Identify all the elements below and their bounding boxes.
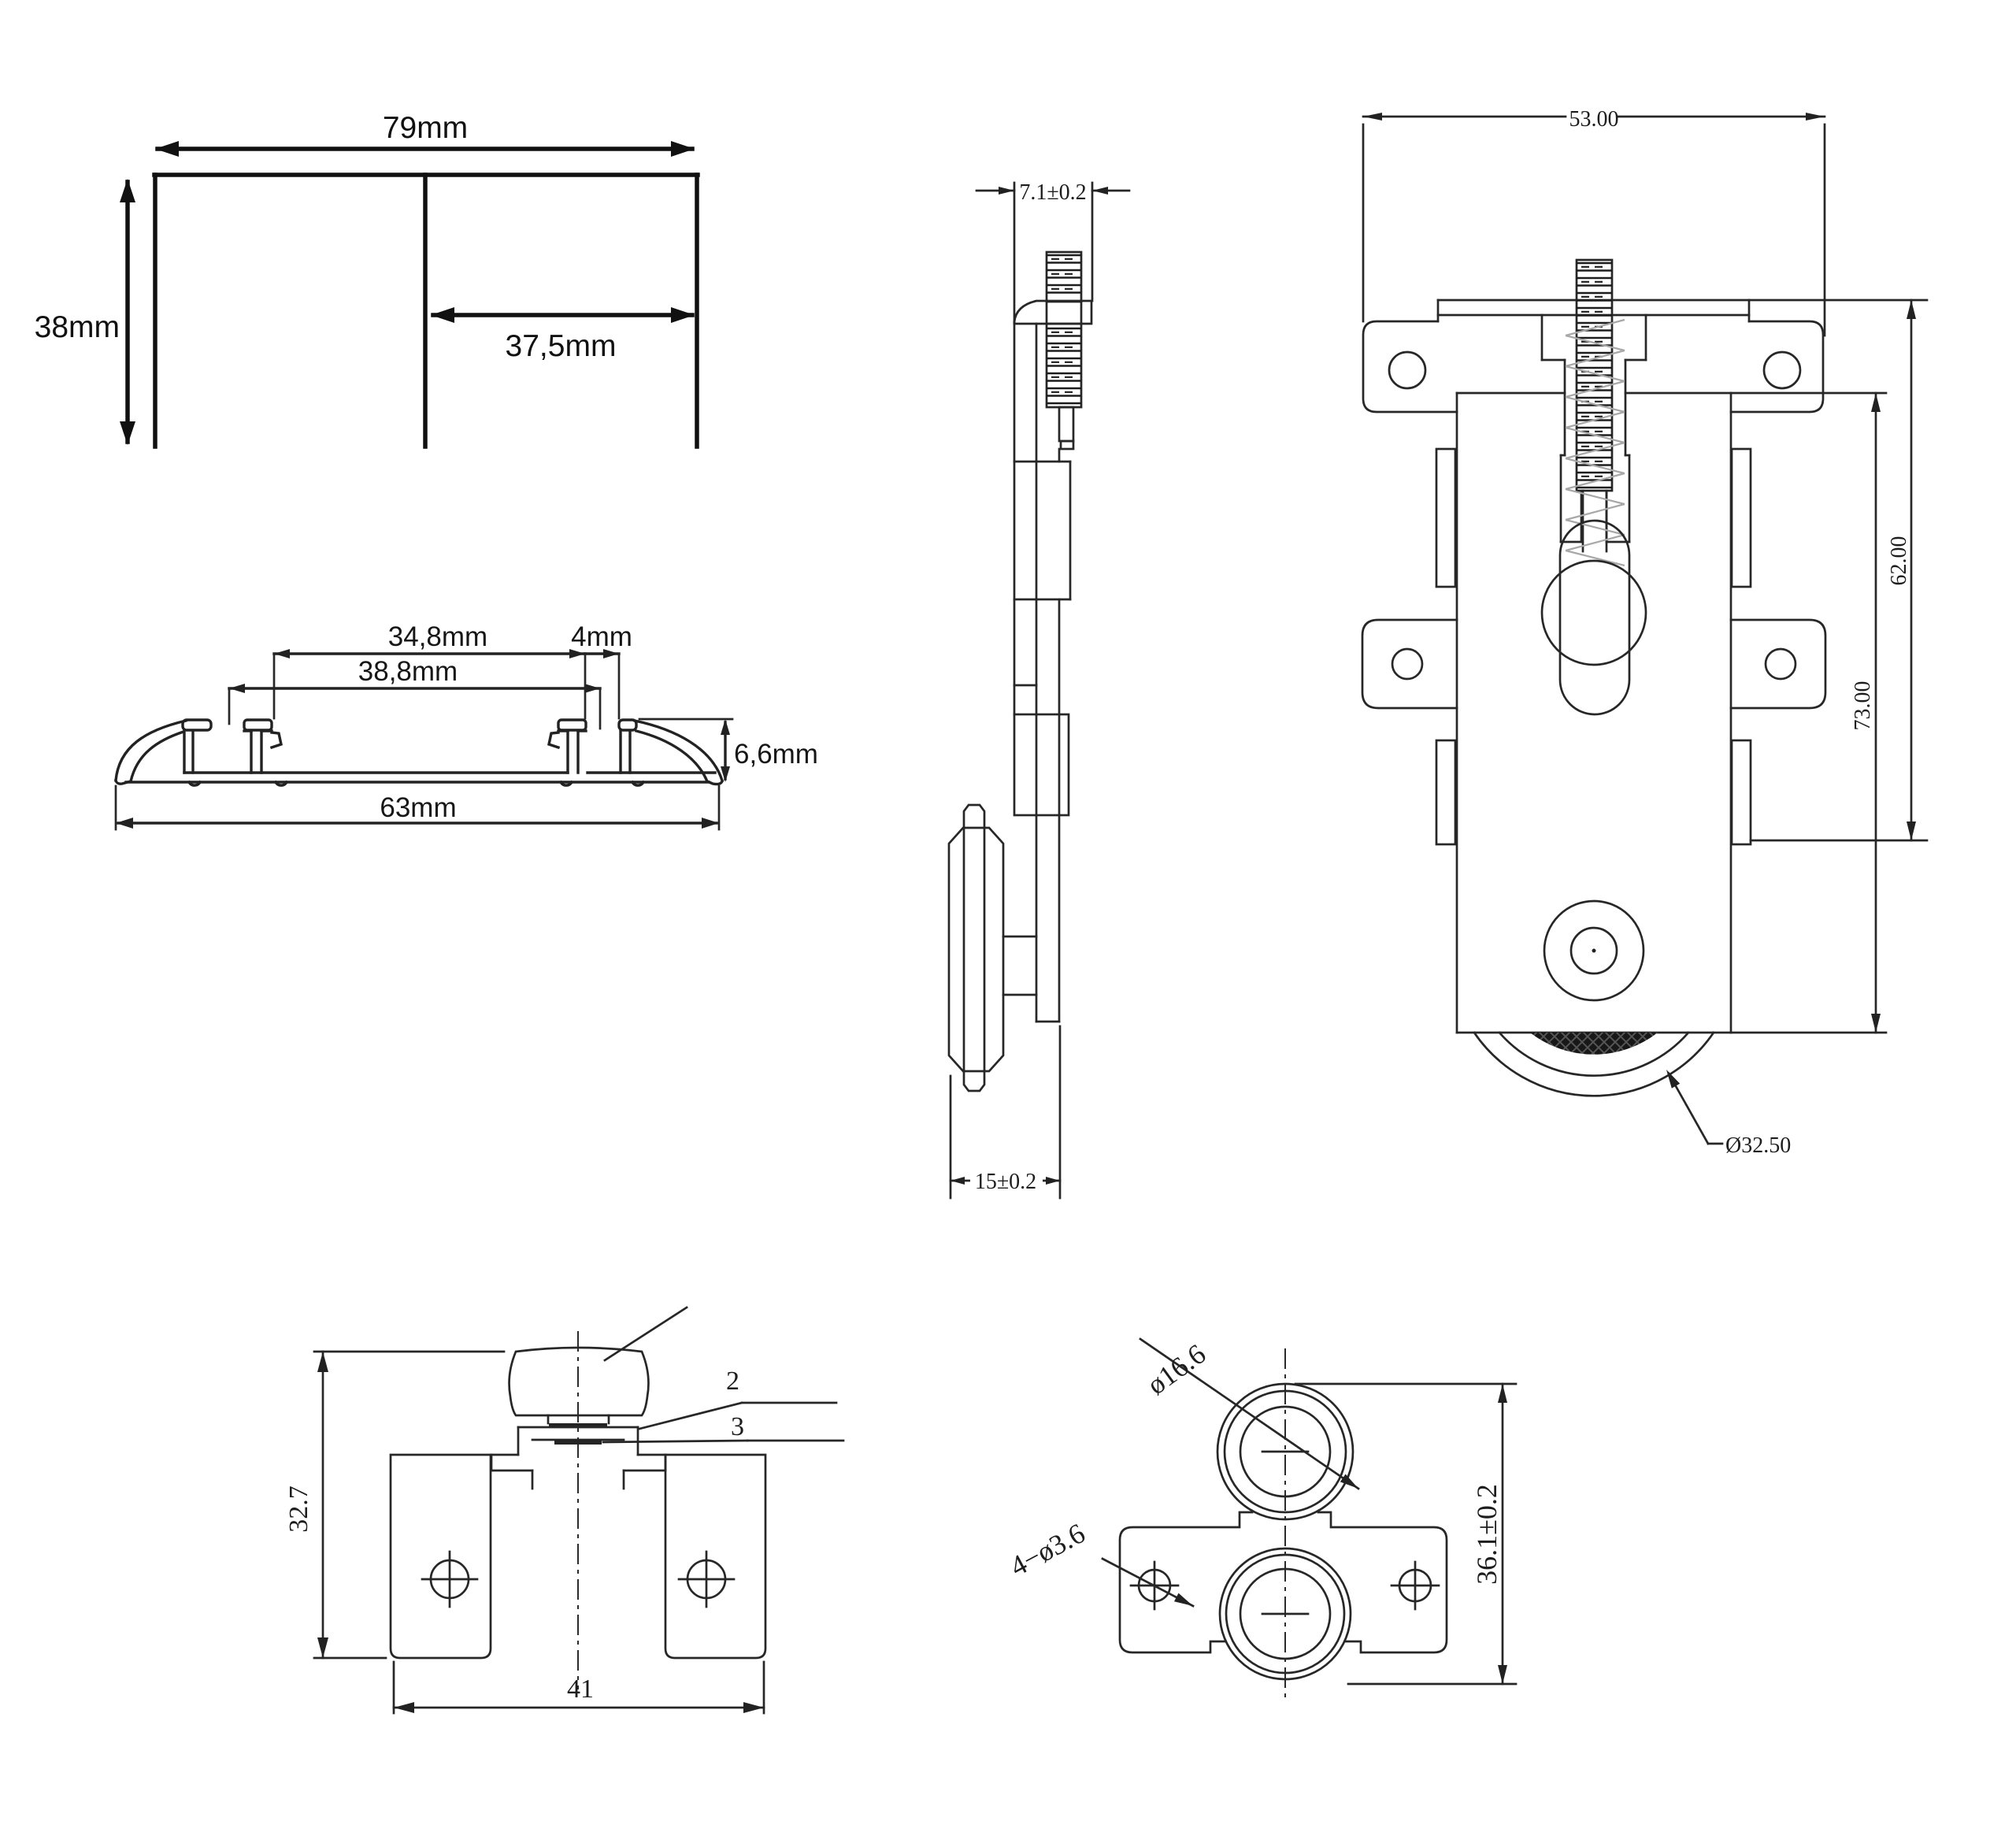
svg-text:6,6mm: 6,6mm	[734, 739, 818, 770]
svg-text:3: 3	[731, 1412, 744, 1441]
svg-text:15±0.2: 15±0.2	[975, 1170, 1036, 1194]
svg-text:73.00: 73.00	[1851, 681, 1875, 731]
svg-text:53.00: 53.00	[1569, 107, 1619, 132]
svg-text:38mm: 38mm	[35, 310, 120, 344]
svg-text:4mm: 4mm	[571, 621, 632, 652]
svg-text:Ø32.50: Ø32.50	[1725, 1133, 1791, 1158]
svg-text:79mm: 79mm	[383, 111, 468, 145]
svg-text:38,8mm: 38,8mm	[358, 656, 458, 687]
svg-text:7.1±0.2: 7.1±0.2	[1019, 180, 1086, 205]
svg-text:32.7: 32.7	[284, 1485, 313, 1533]
svg-text:2: 2	[726, 1367, 739, 1396]
svg-text:34,8mm: 34,8mm	[388, 621, 487, 652]
svg-text:37,5mm: 37,5mm	[506, 329, 617, 363]
svg-text:62.00: 62.00	[1887, 536, 1911, 586]
svg-text:36.1±0.2: 36.1±0.2	[1471, 1484, 1503, 1585]
svg-text:41: 41	[567, 1675, 594, 1704]
svg-text:63mm: 63mm	[380, 792, 456, 823]
